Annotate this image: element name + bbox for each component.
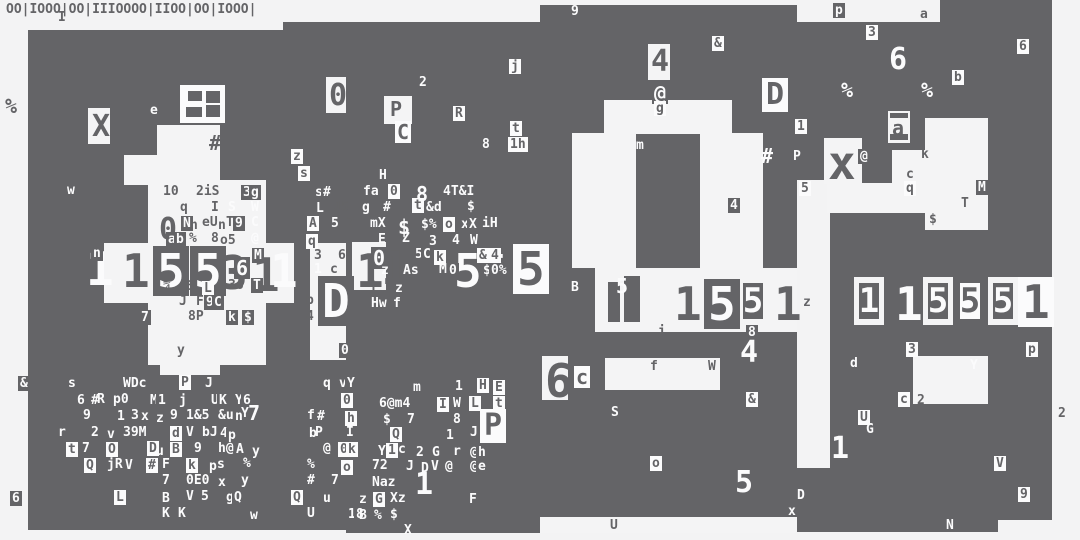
noise-glyph: 1 <box>831 434 849 464</box>
noise-glyph: F <box>162 458 170 471</box>
noise-glyph: t <box>412 198 424 213</box>
noise-glyph: Q <box>84 458 96 473</box>
noise-glyph: b <box>174 232 186 247</box>
noise-glyph: 1 <box>774 281 802 327</box>
window-grid-icon <box>180 85 225 123</box>
noise-glyph: K <box>178 507 186 520</box>
noise-glyph: u <box>323 492 331 505</box>
noise-glyph: @ <box>445 460 453 473</box>
noise-glyph: X <box>92 112 110 142</box>
noise-glyph: U <box>610 519 618 532</box>
noise-glyph: q <box>180 201 188 214</box>
noise-glyph: d <box>850 357 858 370</box>
noise-glyph: 1 <box>122 248 150 294</box>
noise-glyph: V <box>123 458 135 473</box>
noise-glyph: t <box>66 442 78 457</box>
noise-glyph: G <box>373 492 385 507</box>
noise-glyph: b <box>306 294 314 307</box>
noise-glyph: mX <box>370 217 386 230</box>
noise-glyph: L <box>314 201 326 216</box>
big-digit-tile: 5 <box>923 277 953 325</box>
noise-glyph: e <box>476 459 488 474</box>
noise-glyph: 8P <box>188 310 204 323</box>
noise-glyph: z <box>803 296 811 309</box>
noise-glyph: C <box>395 121 411 143</box>
noise-glyph: iH <box>482 217 498 230</box>
light-block <box>605 358 720 390</box>
noise-glyph: g <box>654 101 666 116</box>
noise-glyph: 9 <box>194 442 202 455</box>
noise-glyph: % <box>307 458 315 471</box>
noise-glyph: 9 <box>571 5 579 18</box>
noise-glyph: Hw <box>371 297 387 310</box>
noise-glyph: 4 <box>306 310 314 323</box>
noise-glyph: Naz <box>372 476 395 489</box>
noise-glyph: I <box>211 201 219 214</box>
noise-glyph: 5 <box>704 279 740 329</box>
noise-glyph: V <box>186 426 194 439</box>
noise-glyph: 6 <box>10 491 22 506</box>
noise-glyph: A <box>307 216 319 231</box>
noise-glyph: J <box>406 460 414 473</box>
noise-glyph: B <box>359 509 367 522</box>
noise-glyph: 9 <box>233 216 245 231</box>
noise-glyph: s <box>217 458 225 471</box>
noise-glyph: $ <box>390 508 398 521</box>
noise-glyph: C <box>251 216 259 229</box>
noise-glyph: f <box>393 297 401 310</box>
window-pane <box>186 107 202 117</box>
noise-glyph: B <box>571 281 579 294</box>
noise-glyph: 1 <box>115 409 127 424</box>
noise-glyph: e <box>150 104 158 117</box>
noise-glyph: &u <box>218 409 234 422</box>
noise-glyph: 1 <box>795 119 807 134</box>
noise-glyph: 4 <box>489 248 501 263</box>
noise-glyph: 2 <box>414 445 426 460</box>
noise-glyph: Q <box>390 427 402 442</box>
noise-glyph: h <box>345 411 357 426</box>
noise-glyph: o <box>650 456 662 471</box>
noise-glyph: 2 <box>1058 407 1066 420</box>
noise-glyph: & <box>18 376 30 391</box>
noise-glyph: R <box>453 106 465 121</box>
noise-glyph: s <box>68 377 76 390</box>
noise-glyph: 9 <box>1018 487 1030 502</box>
noise-glyph: k <box>921 148 929 161</box>
noise-glyph: &d <box>426 201 442 214</box>
noise-glyph: 7 <box>248 403 260 423</box>
noise-glyph: A <box>234 442 246 457</box>
noise-glyph: 3 <box>131 409 139 422</box>
noise-glyph: X <box>404 524 412 537</box>
noise-glyph: z <box>291 149 303 164</box>
big-digit-tile: 1 <box>854 277 884 325</box>
noise-glyph: 7 <box>347 217 355 230</box>
noise-glyph: K <box>162 507 170 520</box>
noise-glyph: K <box>217 393 229 408</box>
noise-glyph: 7 <box>82 442 90 455</box>
noise-glyph: z <box>359 493 367 506</box>
noise-glyph: # <box>146 458 158 473</box>
noise-glyph: P <box>390 99 402 119</box>
noise-glyph: w <box>67 184 75 197</box>
noise-glyph: y <box>177 344 185 357</box>
noise-glyph: F <box>196 295 204 308</box>
noise-glyph: j <box>509 59 521 74</box>
noise-glyph: P <box>315 426 323 439</box>
noise-glyph: % <box>189 232 197 245</box>
noise-glyph: r <box>58 426 66 439</box>
noise-glyph: jR <box>107 458 123 471</box>
big-digit: 5 <box>988 277 1018 325</box>
noise-glyph: # <box>761 146 773 166</box>
noise-glyph: H <box>477 378 489 393</box>
noise-glyph: & <box>477 248 489 263</box>
noise-glyph: 3 <box>866 25 878 40</box>
noise-glyph: x <box>139 409 151 424</box>
noise-glyph: 6 <box>338 249 346 262</box>
noise-glyph: h@ <box>218 442 234 455</box>
noise-glyph: 6. <box>186 280 202 293</box>
big-digit: 5 <box>923 277 953 325</box>
dark-block <box>780 468 998 532</box>
noise-glyph: 2 <box>91 426 99 439</box>
noise-glyph: 5 <box>329 216 341 231</box>
noise-glyph: As <box>403 264 419 277</box>
noise-glyph: 4 <box>728 198 740 213</box>
noise-glyph: eU <box>202 216 218 229</box>
noise-glyph: $ <box>929 213 937 226</box>
noise-glyph: P <box>793 150 801 163</box>
big-digit: 1 <box>854 277 884 325</box>
noise-glyph: G <box>430 445 442 460</box>
noise-glyph: o5 <box>220 234 236 247</box>
noise-glyph: J5 <box>333 201 349 214</box>
noise-glyph: Q <box>291 490 303 505</box>
noise-glyph: j <box>369 281 377 294</box>
noise-glyph: 7 <box>405 412 417 427</box>
noise-glyph: 5 <box>513 244 549 294</box>
noise-glyph: C <box>421 247 433 262</box>
noise-glyph: 1 <box>314 263 322 276</box>
noise-glyph: J <box>470 426 478 439</box>
noise-glyph: Q <box>232 490 244 505</box>
noise-glyph: i <box>658 325 666 338</box>
noise-glyph: z <box>381 264 389 277</box>
noise-glyph: 6 <box>1017 39 1029 54</box>
noise-glyph: $ <box>242 310 254 325</box>
noise-glyph: L <box>114 490 126 505</box>
noise-glyph: bJ <box>202 426 218 439</box>
noise-glyph: J <box>179 295 187 308</box>
noise-glyph: # <box>209 133 221 153</box>
dark-block <box>797 22 1052 65</box>
noise-glyph: 1 <box>453 379 465 394</box>
noise-glyph: B <box>170 442 182 457</box>
noise-glyph: k <box>226 310 238 325</box>
noise-glyph: P <box>480 409 506 443</box>
noise-glyph: 1 <box>270 248 298 294</box>
noise-glyph: c <box>398 443 406 456</box>
noise-glyph: T <box>251 278 263 293</box>
noise-glyph: S <box>611 406 619 419</box>
noise-glyph: @ <box>323 442 331 455</box>
noise-glyph: 3 <box>906 342 918 357</box>
noise-glyph: S <box>228 201 236 214</box>
noise-glyph: V <box>186 490 194 503</box>
noise-glyph: 1h <box>508 137 528 152</box>
noise-glyph: 8 <box>453 413 461 426</box>
noise-glyph: 2iS <box>196 185 219 198</box>
noise-glyph: 5 <box>201 490 209 503</box>
noise-glyph: 1 <box>674 281 702 327</box>
noise-glyph: 0 <box>329 81 347 111</box>
noise-glyph: D <box>318 276 354 326</box>
noise-glyph: 6 <box>545 358 573 404</box>
noise-glyph: p0 <box>113 393 129 406</box>
noise-glyph: O <box>106 442 118 457</box>
window-pane <box>206 91 220 103</box>
noise-glyph: q <box>323 377 331 390</box>
noise-glyph: 1 <box>386 443 398 458</box>
noise-glyph: Y <box>378 445 386 458</box>
noise-glyph: M <box>252 248 264 263</box>
noise-glyph: T <box>961 197 969 210</box>
noise-glyph: 1 <box>156 393 168 408</box>
noise-glyph: 1 <box>1018 277 1054 327</box>
noise-glyph: p <box>1026 342 1038 357</box>
noise-glyph: s <box>298 166 310 181</box>
noise-glyph: I <box>58 11 66 24</box>
noise-glyph: % <box>921 80 933 100</box>
noise-glyph: Xz <box>390 492 406 505</box>
noise-glyph: 0 <box>339 343 351 358</box>
light-block <box>160 360 220 375</box>
dark-block <box>940 0 1052 22</box>
noise-glyph: D <box>797 489 805 502</box>
noise-glyph: 3o <box>228 279 244 292</box>
noise-glyph: % <box>241 456 253 471</box>
light-block <box>604 100 732 133</box>
noise-glyph: 6 <box>234 257 250 279</box>
noise-glyph: 7 <box>139 310 151 325</box>
noise-glyph: n <box>218 219 226 232</box>
noise-glyph: X <box>467 217 479 232</box>
noise-glyph: 4T&I <box>443 185 474 198</box>
noise-glyph: @ <box>251 232 259 245</box>
noise-glyph: 7 <box>331 474 339 487</box>
noise-glyph: 8 <box>482 138 490 151</box>
noise-glyph: 0% <box>489 263 509 278</box>
noise-glyph: 1 <box>415 470 433 500</box>
noise-glyph: b <box>952 70 964 85</box>
noise-glyph: % <box>5 96 17 116</box>
big-digit: 5 <box>738 277 768 325</box>
noise-glyph: n <box>91 246 103 261</box>
noise-glyph: Y <box>345 376 357 391</box>
scene: OO|IOOO|OO|IIIOOOO|IIOO|OO|IOOO| 15555I%… <box>0 0 1080 540</box>
noise-glyph: a <box>920 8 928 21</box>
noise-glyph: & <box>712 36 724 51</box>
noise-glyph: $% <box>419 217 439 232</box>
noise-glyph: 6 <box>75 393 87 408</box>
noise-glyph: 10 <box>163 185 179 198</box>
noise-glyph: W <box>453 397 461 410</box>
noise-glyph: N <box>946 519 954 532</box>
noise-glyph: # <box>321 185 333 200</box>
noise-glyph: D <box>762 78 788 112</box>
noise-glyph: P <box>179 375 191 390</box>
noise-glyph: z <box>393 281 405 296</box>
noise-glyph: # <box>307 474 315 487</box>
noise-glyph: 7 <box>162 474 170 487</box>
noise-glyph: WDc <box>123 377 146 390</box>
noise-glyph: $ <box>467 200 475 213</box>
noise-glyph: $ <box>381 412 393 427</box>
noise-glyph: J <box>205 377 213 390</box>
noise-glyph: 8 <box>211 232 219 245</box>
noise-glyph: G <box>866 423 874 436</box>
noise-glyph: 0 <box>388 184 400 199</box>
noise-glyph: I <box>437 397 449 412</box>
noise-glyph: 0 <box>341 393 353 408</box>
noise-glyph: W <box>708 360 716 373</box>
noise-glyph: q <box>306 234 318 249</box>
noise-glyph: g <box>249 185 261 200</box>
noise-glyph: H <box>379 169 387 182</box>
noise-glyph: 6 <box>889 45 907 75</box>
noise-glyph: Y <box>970 359 978 372</box>
noise-glyph: d <box>170 426 182 441</box>
noise-glyph: # <box>315 409 327 424</box>
noise-glyph: @ <box>858 149 870 164</box>
noise-glyph: fa <box>363 185 379 198</box>
noise-glyph: 2 <box>419 76 427 89</box>
noise-glyph: k <box>186 458 198 473</box>
noise-glyph: R <box>97 393 105 406</box>
noise-glyph: f <box>307 409 315 422</box>
noise-glyph: 1 <box>446 429 454 442</box>
noise-glyph: 2 <box>917 394 925 407</box>
noise-glyph: 4 <box>651 47 669 77</box>
noise-glyph: k <box>346 442 358 457</box>
noise-glyph: 9 <box>170 409 178 422</box>
noise-glyph: z <box>154 411 166 426</box>
dark-block <box>283 22 346 32</box>
noise-glyph: % <box>841 80 853 100</box>
noise-glyph: 6@m4 <box>379 397 410 410</box>
light-block <box>540 517 797 533</box>
noise-glyph: x <box>218 476 226 489</box>
noise-glyph: 4 <box>740 338 758 368</box>
noise-glyph: p <box>209 460 217 473</box>
noise-glyph: v <box>107 428 115 441</box>
noise-glyph: % <box>374 509 382 522</box>
noise-glyph: 9 <box>83 409 91 422</box>
binary-header-string: OO|IOOO|OO|IIIOOOO|IIOO|OO|IOOO| <box>6 3 256 16</box>
noise-glyph: U <box>307 507 315 520</box>
noise-glyph: 0 <box>447 263 459 278</box>
noise-glyph: m <box>413 381 421 394</box>
noise-glyph: r <box>453 445 461 458</box>
noise-glyph: x <box>788 505 796 518</box>
noise-glyph: 39M <box>123 426 146 439</box>
window-pane <box>206 105 220 117</box>
noise-glyph: g <box>362 201 370 214</box>
noise-glyph: t <box>510 121 522 136</box>
noise-glyph: ¼ <box>163 278 171 291</box>
noise-glyph: c <box>898 392 910 407</box>
noise-glyph: 72 <box>372 459 388 472</box>
noise-glyph: o <box>341 460 353 475</box>
noise-glyph: 0E0 <box>186 474 209 487</box>
noise-glyph: q <box>904 181 916 196</box>
noise-glyph: a <box>892 118 904 138</box>
dark-overlay-block <box>636 134 700 268</box>
noise-glyph: # <box>381 200 393 215</box>
noise-glyph: C <box>212 295 224 310</box>
noise-glyph: 5 <box>799 181 811 196</box>
noise-glyph: w <box>250 509 258 522</box>
noise-glyph: M <box>439 263 447 276</box>
window-pane <box>188 91 202 101</box>
noise-glyph: M <box>976 180 988 195</box>
big-digit-tile: 5 <box>955 277 985 325</box>
noise-glyph: y <box>241 474 249 487</box>
big-digit-tile: 5 <box>988 277 1018 325</box>
noise-glyph: m <box>636 139 644 152</box>
noise-glyph: I <box>346 426 354 439</box>
noise-glyph: 5 <box>735 468 753 498</box>
noise-glyph: 3 <box>314 249 322 262</box>
noise-glyph: E <box>493 380 505 395</box>
noise-glyph: V <box>994 456 1006 471</box>
noise-glyph: 1 <box>895 281 923 327</box>
noise-glyph: x <box>828 140 856 186</box>
noise-glyph: F <box>469 493 477 506</box>
noise-glyph: o <box>443 217 455 232</box>
noise-glyph: 1&5 <box>186 409 209 422</box>
big-digit: 5 <box>955 277 985 325</box>
big-digit-tile: 5 <box>738 277 768 325</box>
noise-glyph: B <box>162 492 170 505</box>
noise-glyph: c <box>574 366 590 388</box>
noise-glyph: p <box>833 3 845 18</box>
noise-glyph: h <box>476 445 488 460</box>
noise-glyph: j <box>179 394 187 407</box>
noise-glyph: f <box>650 360 658 373</box>
noise-glyph: c <box>906 168 914 181</box>
noise-glyph: W <box>251 201 259 214</box>
noise-glyph: 5 <box>616 276 628 296</box>
noise-glyph: & <box>746 392 758 407</box>
